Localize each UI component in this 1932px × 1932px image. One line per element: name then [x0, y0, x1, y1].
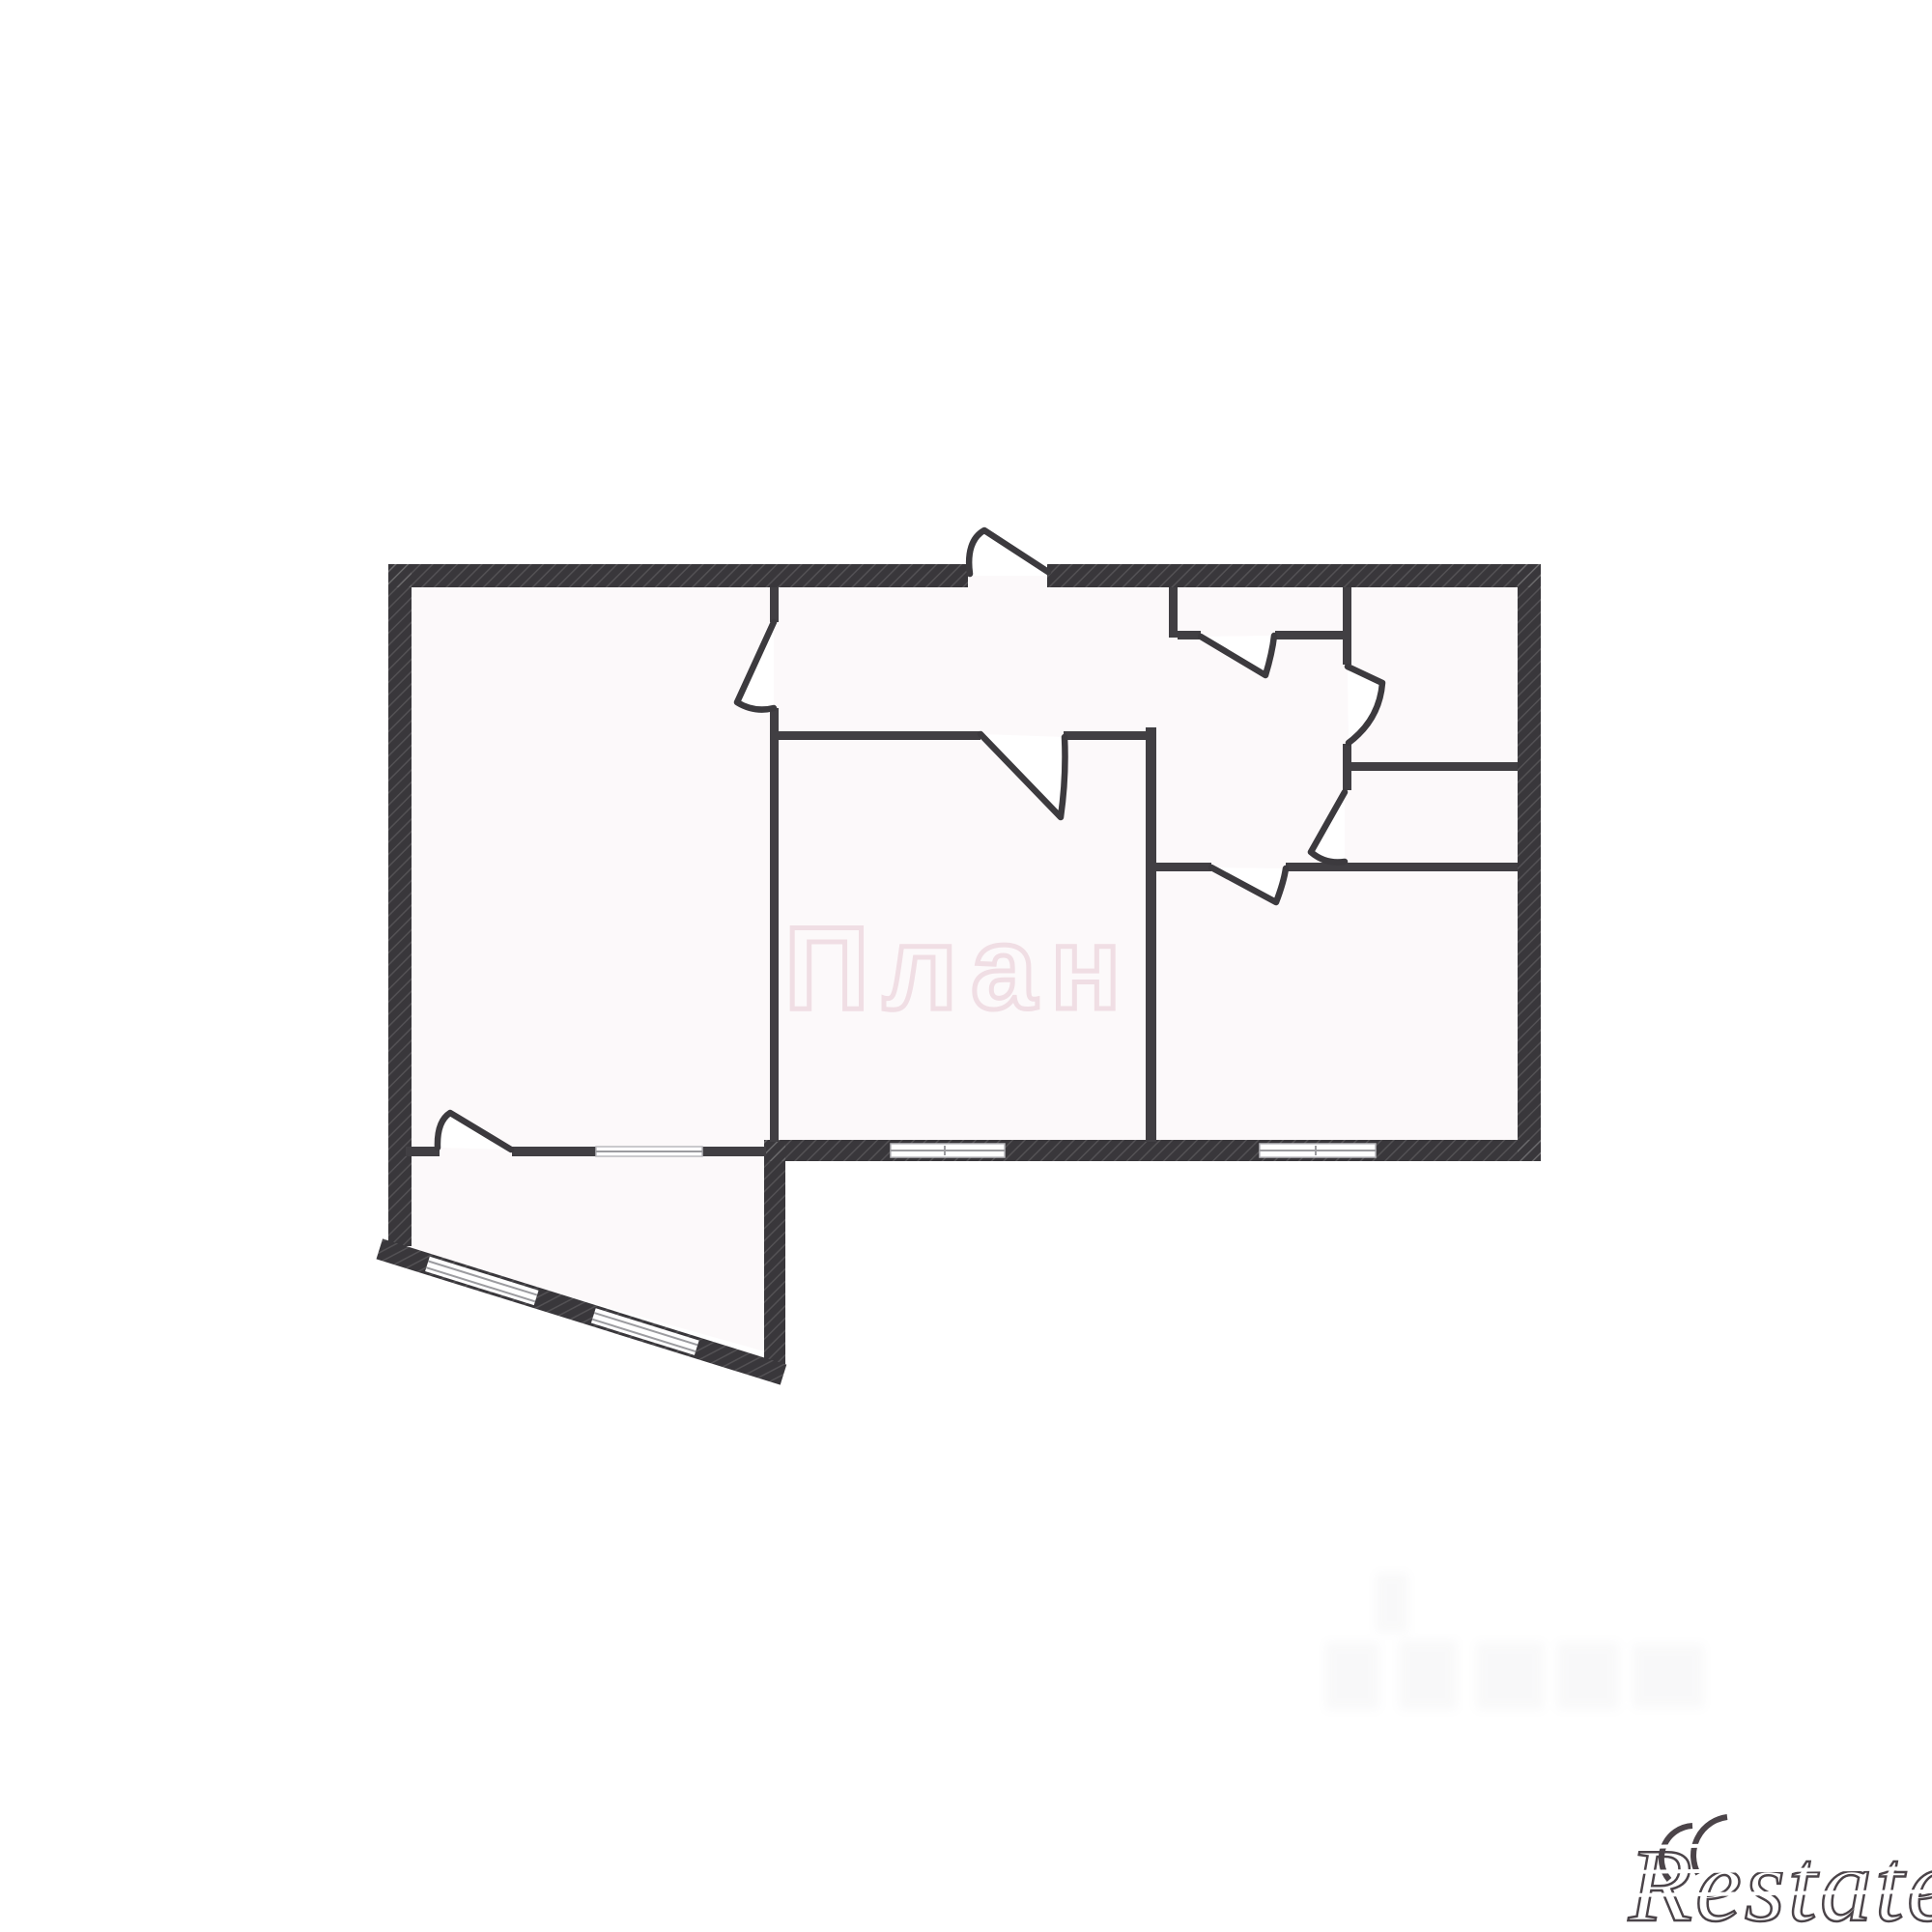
- hatch-top-left: [388, 564, 968, 587]
- faint-glyph-1: [1325, 1642, 1379, 1710]
- lr-bottom-seg-3: [702, 1147, 766, 1156]
- faint-mark-top: [1376, 1573, 1408, 1633]
- wall-h2-closet-bottom: [1275, 631, 1343, 639]
- faint-watermark: [1325, 1573, 1704, 1710]
- faint-glyph-2: [1399, 1640, 1457, 1710]
- wall-h1-right: [1064, 731, 1149, 740]
- restate-slice-3: [1642, 1845, 1739, 1847]
- faint-glyph-4: [1557, 1642, 1619, 1710]
- wall-h4-left: [1156, 863, 1211, 871]
- lr-bottom-seg-2: [512, 1147, 596, 1156]
- left-room-window: [596, 1147, 702, 1156]
- wall-v1-top: [770, 587, 779, 622]
- wall-v1-bottom: [770, 708, 779, 1142]
- restate-wordmark: Restate: [1628, 1829, 1932, 1932]
- lr-bottom-seg-1: [406, 1147, 440, 1156]
- hatch-right: [1518, 564, 1541, 1161]
- door-entrance: [969, 530, 1048, 574]
- faint-glyph-3: [1476, 1642, 1544, 1710]
- hatch-top-right: [1047, 564, 1541, 587]
- restate-logo: Restate: [1623, 1817, 1932, 1932]
- hatch-bottom: [764, 1140, 1541, 1161]
- wall-v4-top: [1343, 587, 1351, 665]
- wall-v2: [1146, 727, 1156, 1142]
- floorplan-page: План: [0, 0, 1932, 1932]
- faint-glyph-5: [1633, 1644, 1704, 1708]
- wall-h4-right: [1286, 863, 1518, 871]
- wall-h1-left: [779, 731, 980, 740]
- floor-plan-svg: План: [0, 0, 1932, 1932]
- wall-v4-mid: [1343, 744, 1351, 790]
- wall-h2-stub: [1178, 631, 1201, 639]
- wall-v3-closet-left: [1169, 587, 1178, 638]
- wall-h3-rooms-a-c: [1351, 762, 1518, 771]
- plan-watermark: План: [784, 902, 1135, 1034]
- hatch-balcony-right: [764, 1140, 785, 1364]
- hatch-left: [388, 564, 412, 1246]
